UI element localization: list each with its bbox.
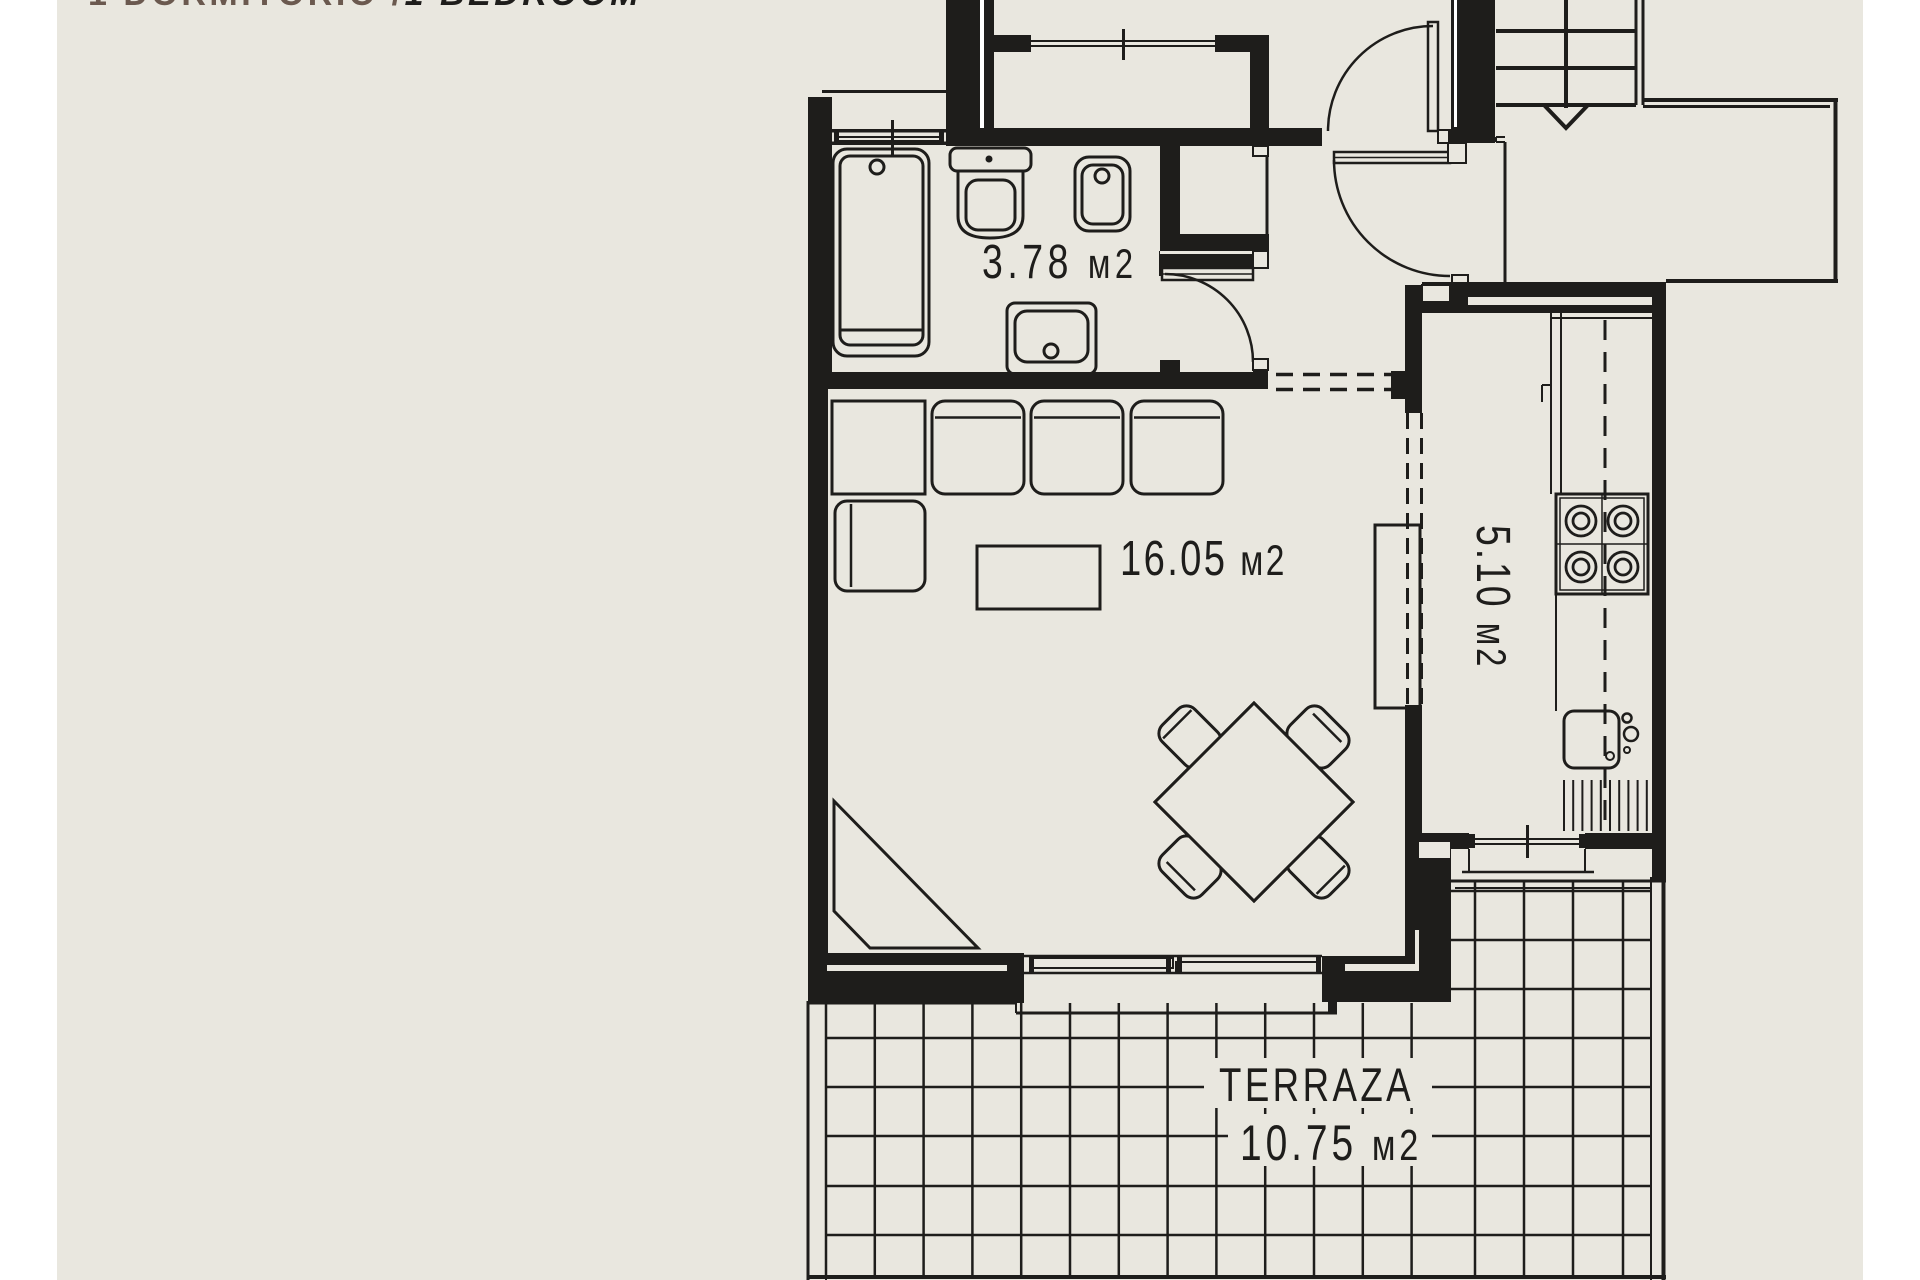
svg-text:16.05 м2: 16.05 м2 — [1120, 532, 1287, 587]
svg-text:5.10 м2: 5.10 м2 — [1466, 525, 1520, 669]
svg-text:TERRAZA: TERRAZA — [1219, 1059, 1414, 1111]
svg-text:10.75 м2: 10.75 м2 — [1240, 1114, 1422, 1171]
svg-text:3.78 м2: 3.78 м2 — [982, 236, 1138, 290]
svg-text:1 DORMITORIO /1 BEDROOM: 1 DORMITORIO /1 BEDROOM — [88, 0, 642, 13]
